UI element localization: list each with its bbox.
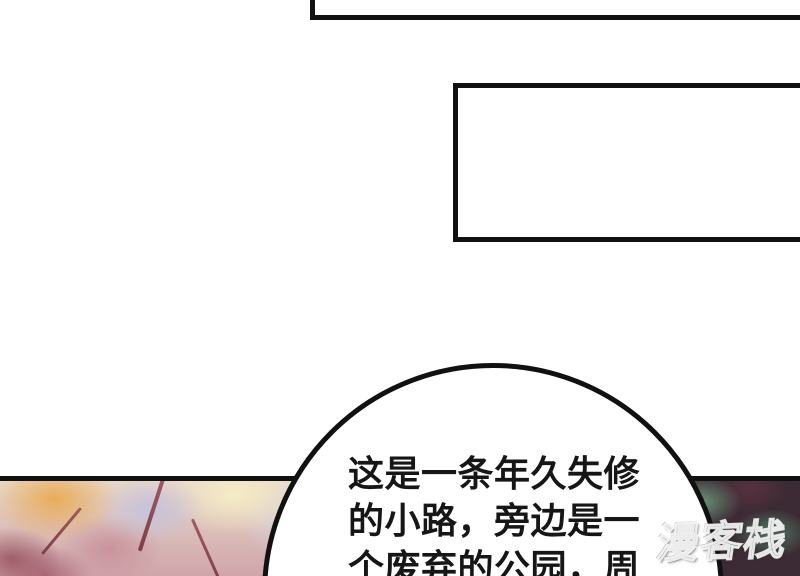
branch-art — [191, 518, 222, 576]
comic-page: 这是一条年久失修 的小路，旁边是一 个废弃的公园，周 漫客栈 — [0, 0, 800, 576]
speech-box-empty — [453, 83, 800, 242]
dialogue-line: 个废弃的公园，周 — [348, 545, 658, 576]
branch-art — [138, 476, 167, 552]
dialogue-line: 这是一条年久失修 — [348, 451, 658, 498]
dialogue-text: 这是一条年久失修 的小路，旁边是一 个废弃的公园，周 — [348, 451, 658, 576]
speech-box-top-partial — [310, 0, 800, 20]
dialogue-line: 的小路，旁边是一 — [348, 498, 658, 545]
site-watermark: 漫客栈 — [653, 506, 791, 571]
branch-art — [41, 507, 82, 555]
